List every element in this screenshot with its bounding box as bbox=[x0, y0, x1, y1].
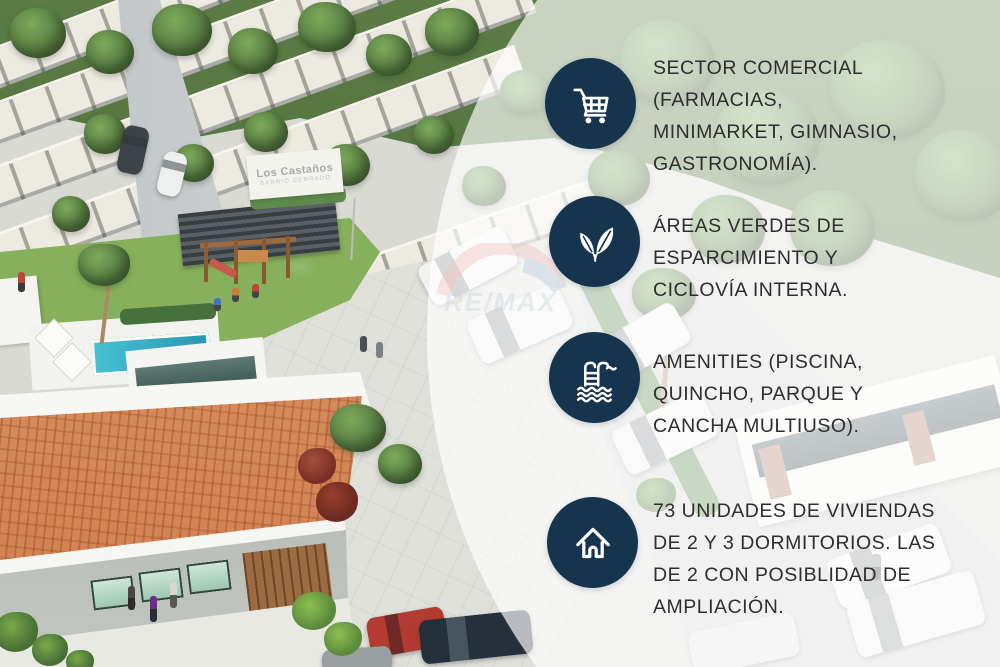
feature-text-sector-comercial: SECTOR COMERCIAL (FARMACIAS, MINIMARKET,… bbox=[653, 52, 898, 180]
feature-line: QUINCHO, PARQUE Y bbox=[653, 378, 863, 410]
palm-tree bbox=[330, 404, 386, 452]
feature-line: (FARMACIAS, bbox=[653, 84, 898, 116]
feature-line: SECTOR COMERCIAL bbox=[653, 52, 898, 84]
flyer: Los Castaños BARRIO CERRADO bbox=[0, 0, 1000, 667]
tree bbox=[52, 196, 90, 232]
person bbox=[128, 586, 135, 610]
playground-beam bbox=[200, 237, 296, 249]
feature-line: DE 2 Y 3 DORMITORIOS. LAS bbox=[653, 527, 935, 559]
feature-line: AMPLIACIÓN. bbox=[653, 591, 935, 623]
person bbox=[214, 298, 221, 311]
feature-line: AMENITIES (PISCINA, bbox=[653, 346, 863, 378]
person bbox=[232, 288, 239, 302]
shrub bbox=[66, 650, 94, 667]
feature-text-amenities: AMENITIES (PISCINA, QUINCHO, PARQUE Y CA… bbox=[653, 346, 863, 442]
person bbox=[150, 596, 157, 622]
feature-line: ÁREAS VERDES DE bbox=[653, 210, 848, 242]
palm-tree bbox=[378, 444, 422, 484]
entrance-sign: Los Castaños BARRIO CERRADO bbox=[246, 148, 343, 200]
house-icon bbox=[547, 497, 638, 588]
shopping-cart-icon bbox=[545, 58, 636, 149]
feature-text-areas-verdes: ÁREAS VERDES DE ESPARCIMIENTO Y CICLOVÍA… bbox=[653, 210, 848, 306]
tree bbox=[244, 112, 288, 152]
leaf-icon bbox=[549, 196, 640, 287]
feature-line: ESPARCIMIENTO Y bbox=[653, 242, 848, 274]
person bbox=[252, 284, 259, 298]
feature-line: CICLOVÍA INTERNA. bbox=[653, 274, 848, 306]
person bbox=[360, 336, 367, 352]
feature-line: 73 UNIDADES DE VIVIENDAS bbox=[653, 495, 935, 527]
tree bbox=[152, 4, 212, 56]
playground-post bbox=[286, 236, 290, 278]
tree bbox=[425, 8, 479, 56]
tree bbox=[298, 2, 356, 52]
feature-text-unidades: 73 UNIDADES DE VIVIENDAS DE 2 Y 3 DORMIT… bbox=[653, 495, 935, 623]
tree bbox=[414, 116, 454, 154]
person bbox=[18, 272, 25, 292]
feature-line: DE 2 CON POSIBLIDAD DE bbox=[653, 559, 935, 591]
feature-line: MINIMARKET, GIMNASIO, bbox=[653, 116, 898, 148]
playground-post bbox=[204, 242, 208, 282]
tree bbox=[366, 34, 412, 76]
feature-line: CANCHA MULTIUSO). bbox=[653, 410, 863, 442]
palm-tree bbox=[78, 244, 130, 286]
tree bbox=[228, 28, 278, 74]
tree bbox=[86, 30, 134, 74]
tree bbox=[10, 8, 66, 58]
playground-post bbox=[234, 240, 238, 284]
pool-icon bbox=[549, 332, 640, 423]
person bbox=[376, 342, 383, 358]
clubhouse-glass-door bbox=[186, 560, 231, 595]
feature-line: GASTRONOMÍA). bbox=[653, 148, 898, 180]
person bbox=[170, 582, 177, 608]
playground-platform bbox=[238, 250, 268, 262]
